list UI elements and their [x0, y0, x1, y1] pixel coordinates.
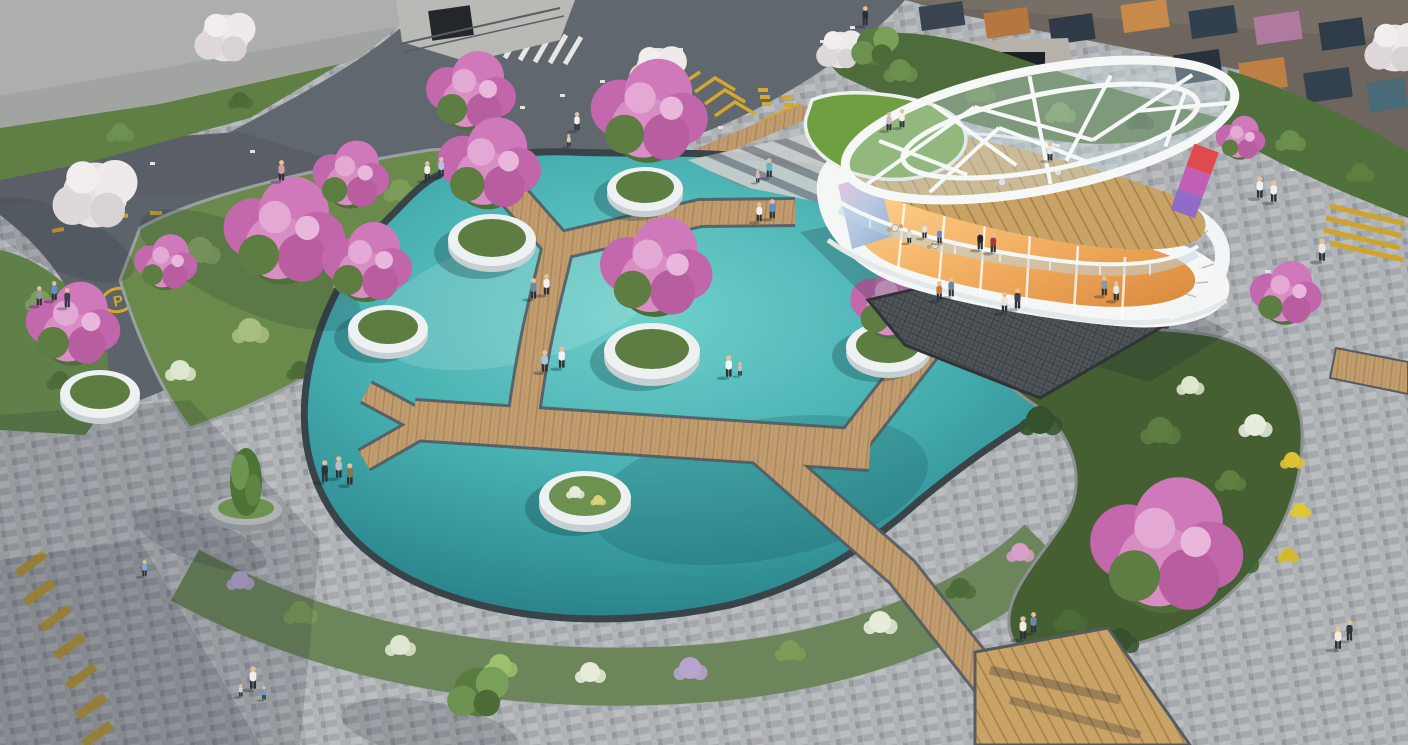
conifer-tree — [230, 448, 262, 516]
scene-rendering: P — [0, 0, 1408, 745]
plaza-aerial-svg: P — [0, 0, 1408, 745]
planter-shore — [60, 370, 140, 424]
